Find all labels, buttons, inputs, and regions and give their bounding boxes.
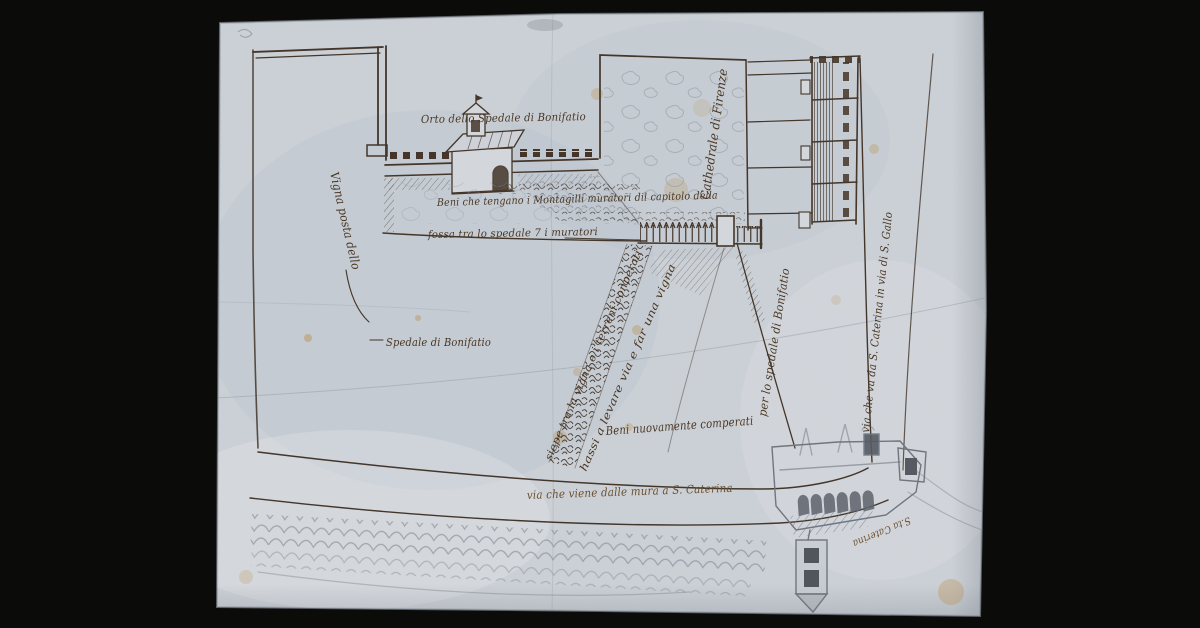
manuscript-map: Orto dello Spedale di Bonifatio Cathedra… (0, 0, 1200, 628)
bell-tower-sketch (796, 530, 827, 612)
paper-edge-shadow-bottom (216, 584, 986, 618)
manuscript-scan: Orto dello Spedale di Bonifatio Cathedra… (0, 0, 1200, 628)
gate-pillar (717, 216, 734, 246)
paper-edge-shadow-right (952, 10, 986, 618)
label-spedale: Spedale di Bonifatio (386, 336, 491, 349)
